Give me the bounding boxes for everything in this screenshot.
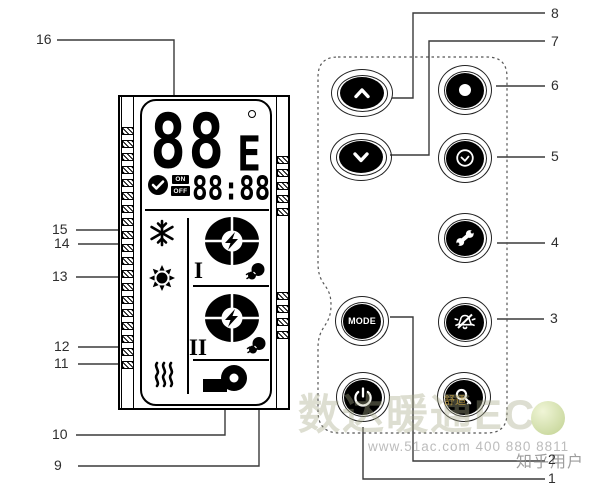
stage2-underline — [193, 359, 269, 361]
timer-on-badge: ON — [172, 175, 189, 184]
callout-2: 2 — [548, 452, 556, 466]
hatch-strip-right-lower — [277, 292, 289, 339]
stage1-underline — [193, 285, 269, 287]
callout-11: 11 — [54, 356, 69, 370]
key-icon — [451, 384, 477, 410]
clock-icon — [453, 146, 477, 170]
pump-icon — [203, 365, 250, 394]
record-button[interactable] — [438, 65, 492, 115]
fan-stage2-icon — [246, 335, 267, 356]
lock-button[interactable] — [437, 372, 491, 422]
callout-lines — [0, 0, 608, 490]
hatch-strip-right-upper — [277, 156, 289, 216]
callout-13: 13 — [52, 269, 68, 283]
callout-1: 1 — [548, 471, 556, 485]
down-button[interactable] — [330, 133, 392, 181]
record-dot-icon — [453, 78, 477, 102]
callout-7: 7 — [551, 34, 559, 48]
callout-9: 9 — [54, 458, 62, 472]
alarm-off-icon — [452, 309, 478, 335]
temperature-readout: 88 — [150, 105, 226, 180]
mode-button-label: MODE — [348, 316, 376, 326]
lcd-display: 88 E ON OFF 88:88 — [140, 99, 272, 406]
hatch-strip-left — [122, 127, 134, 369]
chevron-up-icon — [350, 83, 374, 103]
callout-10: 10 — [52, 427, 68, 441]
sun-icon — [148, 264, 176, 292]
callout-5: 5 — [551, 149, 559, 163]
wrench-icon — [453, 226, 477, 250]
callout-4: 4 — [551, 235, 559, 249]
callout-12: 12 — [54, 339, 70, 353]
callout-line-16 — [57, 40, 174, 99]
alarm-off-button[interactable] — [438, 297, 492, 347]
settings-button[interactable] — [438, 213, 492, 263]
clock-readout: 88:88 — [192, 173, 270, 206]
callout-14: 14 — [54, 236, 70, 250]
check-circle-icon — [147, 174, 169, 196]
fan-stage1-icon — [245, 261, 266, 282]
power-icon — [350, 384, 376, 410]
callout-8: 8 — [551, 6, 559, 20]
callout-6: 6 — [551, 78, 559, 92]
mode-button[interactable]: MODE — [335, 296, 389, 346]
compressor-stage1-icon — [204, 216, 260, 266]
watermark-brand: 数达暖通EC — [298, 394, 536, 436]
diagram-canvas: 88 E ON OFF 88:88 — [0, 0, 608, 490]
timer-off-badge: OFF — [171, 186, 190, 196]
up-button[interactable] — [331, 69, 393, 117]
chevron-down-icon — [349, 147, 373, 167]
stage1-numeral: I — [194, 259, 203, 282]
lcd-right-rail — [276, 95, 289, 410]
callout-16: 16 — [36, 32, 52, 46]
power-button[interactable] — [336, 372, 390, 422]
heater-waves-icon — [151, 361, 177, 389]
snowflake-icon — [148, 219, 176, 247]
display-divider — [145, 209, 269, 211]
stage2-numeral: II — [189, 336, 207, 359]
watermark-logo-ball — [531, 401, 565, 435]
watermark-contact: www.51ac.com 400 880 8811 — [368, 440, 569, 454]
callout-line-1 — [363, 427, 545, 479]
degree-icon — [248, 110, 256, 118]
clock-button[interactable] — [438, 133, 492, 183]
callout-15: 15 — [52, 222, 68, 236]
callout-3: 3 — [550, 311, 558, 325]
display-vertical-divider — [187, 218, 189, 394]
